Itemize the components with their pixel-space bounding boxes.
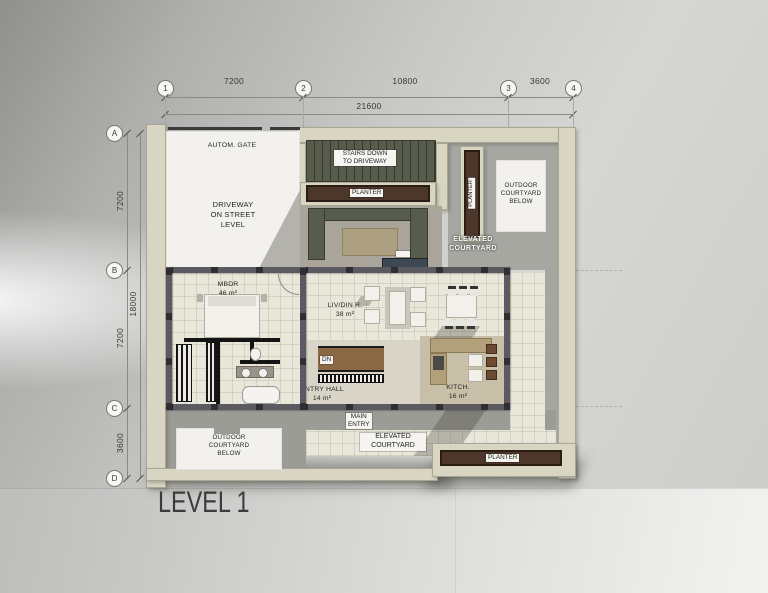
wall-grid-3-glass bbox=[504, 267, 510, 410]
dim-line bbox=[165, 97, 573, 98]
outdoor-table bbox=[342, 228, 398, 256]
grid-label: 4 bbox=[571, 84, 575, 93]
wall-east bbox=[558, 127, 576, 479]
wall-west bbox=[146, 124, 166, 488]
driveway-label: DRIVEWAY ON STREET LEVEL bbox=[193, 200, 273, 229]
bar-stool bbox=[486, 357, 497, 367]
dim-text: 7200 bbox=[115, 181, 125, 221]
outdoor-courtyard-bottom-left-label: OUTDOOR COURTYARD BELOW bbox=[200, 434, 258, 458]
grid-extension bbox=[576, 270, 622, 271]
grid-bubble-A: A bbox=[106, 125, 123, 142]
wardrobe bbox=[176, 344, 192, 402]
kitchen-counter bbox=[430, 338, 492, 353]
grid-line bbox=[573, 96, 574, 128]
dim-text: 3600 bbox=[520, 76, 560, 86]
dim-text: 7200 bbox=[115, 318, 125, 358]
bar-stool bbox=[486, 344, 497, 354]
grid-line bbox=[508, 96, 509, 128]
partition-wall bbox=[216, 342, 220, 404]
fireplace-tag bbox=[396, 251, 410, 257]
room-name: MBDR bbox=[218, 281, 239, 288]
grid-extension bbox=[576, 406, 622, 407]
grid-label: A bbox=[112, 129, 117, 138]
outdoor-sofa-right bbox=[410, 208, 428, 260]
dim-line bbox=[140, 133, 141, 478]
main-entry-label: MAIN ENTRY bbox=[346, 413, 372, 429]
backdrop-floor bbox=[0, 488, 768, 593]
stairs-down-label: STAIRS DOWN TO DRIVEWAY bbox=[334, 150, 396, 166]
outdoor-sofa-left bbox=[308, 208, 325, 260]
sheet-title: LEVEL 1 bbox=[158, 486, 250, 520]
mbdr-label: MBDR46 m² bbox=[206, 281, 250, 299]
wall-grid-B bbox=[166, 267, 510, 273]
dim-text-total: 21600 bbox=[349, 101, 389, 111]
armchair bbox=[364, 309, 380, 324]
sink bbox=[241, 368, 251, 378]
armchair bbox=[410, 287, 426, 302]
floor-plan-sheet: 1 2 3 4 7200 10800 3600 21600 A B C D 72… bbox=[0, 0, 768, 593]
wall-grid-1 bbox=[166, 267, 172, 410]
bar-stool bbox=[486, 370, 497, 380]
room-name: KITCH. bbox=[446, 384, 469, 391]
dn-label: DN bbox=[320, 356, 333, 364]
elevated-courtyard-lower-label: ELEVATED COURTYARD bbox=[360, 433, 426, 451]
grid-bubble-D: D bbox=[106, 470, 123, 487]
entry-hall-label: ENTRY HALL14 m² bbox=[300, 386, 344, 404]
partition-wall bbox=[184, 338, 280, 342]
planter-bottom-label: PLANTER bbox=[486, 454, 519, 462]
armchair bbox=[364, 286, 380, 301]
planter-right-label: PLANTER bbox=[468, 178, 475, 209]
outdoor-courtyard-top-right-label: OUTDOOR COURTYARD BELOW bbox=[493, 182, 549, 206]
grid-label: B bbox=[112, 266, 117, 275]
dining-table bbox=[446, 294, 477, 318]
bathtub bbox=[242, 386, 280, 404]
wall-grid-2 bbox=[300, 267, 306, 410]
sink bbox=[258, 368, 268, 378]
grid-line bbox=[303, 96, 304, 128]
dim-text: 10800 bbox=[385, 76, 425, 86]
autom-gate-label: AUTOM. GATE bbox=[192, 142, 272, 151]
armchair bbox=[410, 312, 426, 327]
grid-label: D bbox=[112, 474, 118, 483]
appliance bbox=[468, 369, 483, 382]
stair-hatch bbox=[318, 374, 384, 383]
partition-wall bbox=[240, 360, 280, 364]
backdrop-seam bbox=[455, 488, 456, 593]
range bbox=[433, 356, 444, 370]
room-area: 16 m² bbox=[449, 393, 467, 400]
room-area: 14 m² bbox=[313, 395, 331, 402]
dim-line bbox=[165, 114, 573, 115]
dim-text: 7200 bbox=[214, 76, 254, 86]
elevated-courtyard-upper-label: ELEVATED COURTYARD bbox=[438, 236, 508, 254]
coffee-table bbox=[389, 291, 406, 325]
right-courtyard-tiles bbox=[510, 273, 545, 452]
grid-label: 1 bbox=[163, 84, 167, 93]
appliance bbox=[468, 354, 483, 367]
room-area: 38 m² bbox=[336, 311, 354, 318]
toilet bbox=[250, 348, 261, 361]
gate-line bbox=[168, 127, 262, 130]
planter-top-label: PLANTER bbox=[350, 189, 383, 197]
grid-label: 2 bbox=[301, 84, 305, 93]
dining-chair bbox=[448, 286, 456, 296]
wall-stair-east bbox=[436, 143, 448, 210]
room-name: ENTRY HALL bbox=[300, 386, 344, 393]
gate-line bbox=[270, 127, 300, 130]
grid-label: C bbox=[112, 404, 118, 413]
grid-bubble-C: C bbox=[106, 400, 123, 417]
dining-chair bbox=[470, 286, 478, 296]
grid-bubble-B: B bbox=[106, 262, 123, 279]
room-area: 46 m² bbox=[219, 290, 237, 297]
dim-text-total: 18000 bbox=[128, 284, 138, 324]
dim-text: 3600 bbox=[115, 423, 125, 463]
dining-chair bbox=[459, 286, 467, 296]
nightstand bbox=[261, 294, 267, 302]
grid-label: 3 bbox=[506, 84, 510, 93]
kitchen-label: KITCH.16 m² bbox=[436, 384, 480, 402]
nightstand bbox=[197, 294, 203, 302]
